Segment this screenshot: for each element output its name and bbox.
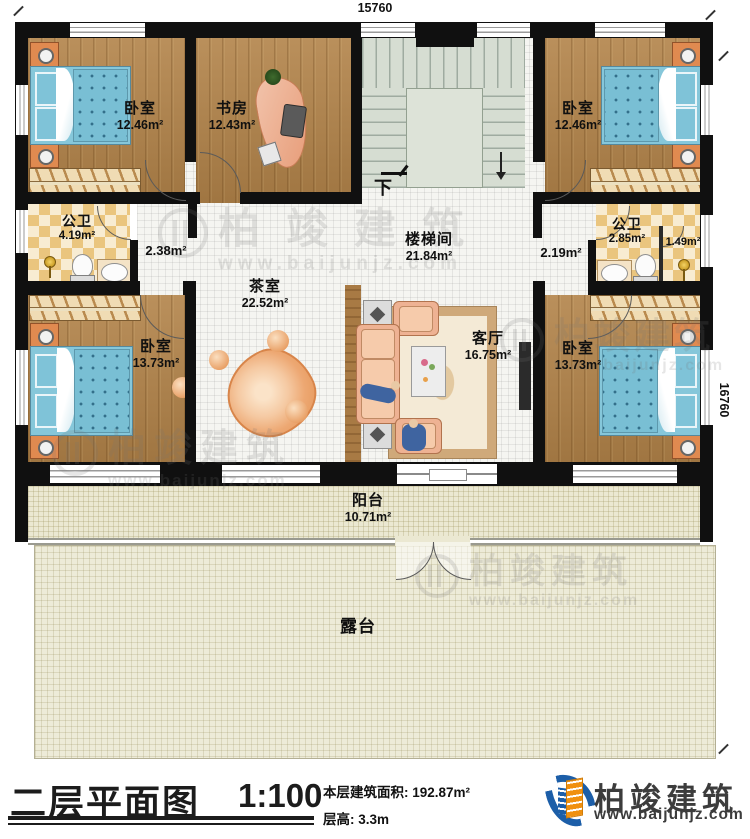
nightstand xyxy=(672,143,701,168)
window xyxy=(222,465,320,483)
floor-lamp xyxy=(44,256,56,280)
terrace-floor xyxy=(34,545,716,759)
room-label-terrace: 露台 xyxy=(318,617,398,637)
room-label-bath-left: 公卫 4.19m² xyxy=(37,213,117,243)
decor-ball xyxy=(285,400,308,423)
plant xyxy=(265,69,281,85)
wardrobe xyxy=(29,295,141,321)
nightstand xyxy=(672,42,701,67)
window xyxy=(70,23,145,37)
area-label-shower: 1.49m² xyxy=(660,236,706,249)
room-label-bedroom-br: 卧室 13.73m² xyxy=(538,340,618,372)
desk-chair xyxy=(280,104,307,139)
nightstand xyxy=(30,42,59,67)
floor-height-text: 层高: 3.3m xyxy=(323,808,389,828)
room-label-bedroom-tl: 卧室 12.46m² xyxy=(100,100,180,132)
nightstand xyxy=(672,323,701,348)
window xyxy=(16,210,28,253)
brand-url: www.baijunjz.com xyxy=(594,806,744,824)
brand-logo-icon xyxy=(549,772,595,824)
nightstand xyxy=(30,323,59,348)
window xyxy=(16,350,28,425)
nightstand xyxy=(30,434,59,459)
window xyxy=(16,85,28,135)
stair-direction-arrow xyxy=(500,152,502,174)
room-label-tea-room: 茶室 22.52m² xyxy=(225,278,305,310)
window xyxy=(701,85,713,135)
nightstand xyxy=(672,434,701,459)
nightstand xyxy=(30,143,59,168)
room-label-living: 客厅 16.75m² xyxy=(446,330,530,362)
area-label-hall-right: 2.19m² xyxy=(521,245,601,260)
dimension-top: 15760 xyxy=(340,1,410,15)
room-label-bedroom-tr: 卧室 12.46m² xyxy=(538,100,618,132)
coffee-table xyxy=(411,346,446,397)
side-table xyxy=(363,420,392,449)
area-label-hall-left: 2.38m² xyxy=(126,243,206,258)
wardrobe xyxy=(590,168,701,195)
room-label-balcony: 阳台 10.71m² xyxy=(328,492,408,524)
room-label-study: 书房 12.43m² xyxy=(192,100,272,132)
room-label-bedroom-bl: 卧室 13.73m² xyxy=(116,338,196,370)
drawing-scale: 1:100 xyxy=(238,777,322,815)
stair-landing xyxy=(406,88,483,188)
stair-down-label: 下 xyxy=(374,174,392,200)
floor-area-text: 本层建筑面积: 192.87m² xyxy=(323,781,470,801)
decor-ball xyxy=(267,330,289,352)
sliding-door xyxy=(397,464,497,484)
sofa xyxy=(356,324,400,424)
dimension-right: 16760 xyxy=(717,365,731,435)
staircase xyxy=(362,38,525,188)
shower-fixture xyxy=(678,259,690,283)
window xyxy=(701,350,713,425)
decor-ball xyxy=(209,350,229,370)
floor-plan-canvas: 柏竣建筑 www.baijunjz.com 柏竣建筑 www.baijunjz.… xyxy=(0,0,750,839)
window xyxy=(361,23,415,37)
room-label-bath-right: 公卫 2.85m² xyxy=(587,216,667,246)
wardrobe xyxy=(29,168,141,195)
room-label-stairwell: 楼梯间 21.84m² xyxy=(389,231,469,263)
window xyxy=(477,23,530,37)
window xyxy=(50,465,160,483)
window xyxy=(595,23,665,37)
window xyxy=(573,465,677,483)
person-sitting xyxy=(402,424,426,451)
